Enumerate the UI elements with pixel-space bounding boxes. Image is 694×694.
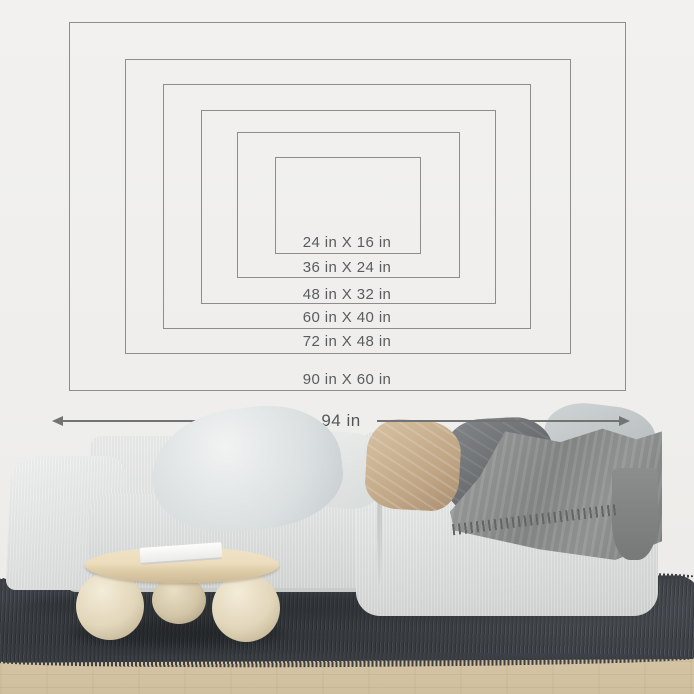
size-label-36x24: 36 in X 24 in bbox=[0, 259, 694, 276]
size-label-60x40: 60 in X 40 in bbox=[0, 309, 694, 326]
table-leg-ball-middle bbox=[152, 576, 206, 624]
arrowhead-left-icon bbox=[52, 416, 63, 426]
size-label-24x16: 24 in X 16 in bbox=[0, 234, 694, 251]
size-label-90x60: 90 in X 60 in bbox=[0, 371, 694, 388]
table-leg-ball-left bbox=[76, 572, 144, 640]
arrow-line-right bbox=[377, 420, 619, 422]
sofa-width-arrow: 94 in bbox=[52, 411, 630, 431]
arrowhead-right-icon bbox=[619, 416, 630, 426]
size-label-72x48: 72 in X 48 in bbox=[0, 333, 694, 350]
size-label-48x32: 48 in X 32 in bbox=[0, 286, 694, 303]
pillow-beige bbox=[364, 418, 463, 513]
table-leg-ball-right bbox=[212, 574, 280, 642]
size-guide-image: 24 in X 16 in 36 in X 24 in 48 in X 32 i… bbox=[0, 0, 694, 694]
